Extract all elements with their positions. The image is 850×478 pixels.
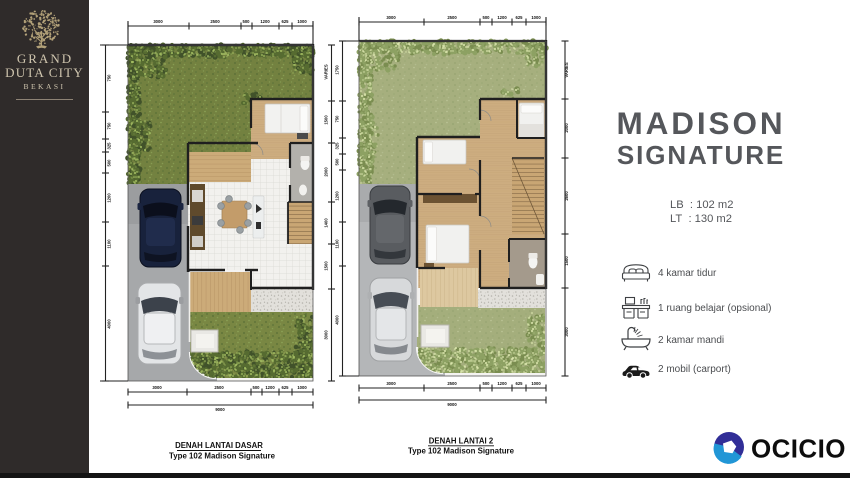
svg-text:3000: 3000 xyxy=(386,15,396,20)
svg-text:1500: 1500 xyxy=(324,261,329,271)
svg-text:9000: 9000 xyxy=(447,402,457,407)
svg-text:4000: 4000 xyxy=(335,315,340,325)
svg-text:2000: 2000 xyxy=(564,123,569,133)
svg-text:3000: 3000 xyxy=(152,385,162,390)
svg-text:9000: 9000 xyxy=(215,407,225,412)
svg-text:500: 500 xyxy=(253,385,261,390)
svg-text:1100: 1100 xyxy=(107,239,112,249)
svg-text:325: 325 xyxy=(107,142,112,150)
svg-text:3000: 3000 xyxy=(564,327,569,337)
svg-text:3000: 3000 xyxy=(324,330,329,340)
svg-text:1000: 1000 xyxy=(297,19,307,24)
svg-text:1000: 1000 xyxy=(531,381,541,386)
svg-text:1100: 1100 xyxy=(335,239,340,249)
svg-text:500: 500 xyxy=(483,381,491,386)
svg-text:4000: 4000 xyxy=(107,319,112,329)
svg-text:625: 625 xyxy=(516,15,524,20)
svg-text:DENAH LANTAI DASAR: DENAH LANTAI DASAR xyxy=(175,441,263,450)
svg-text:1400: 1400 xyxy=(324,218,329,228)
svg-text:500: 500 xyxy=(107,159,112,167)
svg-text:750: 750 xyxy=(107,122,112,130)
svg-text:500: 500 xyxy=(243,19,251,24)
svg-text:1200: 1200 xyxy=(260,19,270,24)
svg-text:1500: 1500 xyxy=(564,256,569,266)
svg-text:1000: 1000 xyxy=(297,385,307,390)
svg-text:2500: 2500 xyxy=(447,381,457,386)
svg-text:VARIES: VARIES xyxy=(564,62,569,77)
svg-text:BEKASI: BEKASI xyxy=(23,82,65,91)
svg-text:1200: 1200 xyxy=(265,385,275,390)
svg-text:DUTA CITY: DUTA CITY xyxy=(5,65,84,80)
svg-text:1200: 1200 xyxy=(107,193,112,203)
svg-text:1200: 1200 xyxy=(497,381,507,386)
svg-text:2500: 2500 xyxy=(214,385,224,390)
svg-text:625: 625 xyxy=(516,381,524,386)
svg-text:325: 325 xyxy=(335,142,340,150)
svg-text:1750: 1750 xyxy=(335,65,340,75)
svg-text:DENAH LANTAI 2: DENAH LANTAI 2 xyxy=(429,437,494,446)
svg-text:2600: 2600 xyxy=(564,191,569,201)
svg-text:2000: 2000 xyxy=(324,167,329,177)
svg-text:500: 500 xyxy=(483,15,491,20)
svg-text:750: 750 xyxy=(107,74,112,82)
svg-text:625: 625 xyxy=(282,19,290,24)
svg-text:1000: 1000 xyxy=(531,15,541,20)
svg-text:VARIES: VARIES xyxy=(324,64,329,79)
svg-text:2500: 2500 xyxy=(447,15,457,20)
svg-text:OCICIO: OCICIO xyxy=(751,434,846,464)
svg-text:1200: 1200 xyxy=(335,191,340,201)
svg-text:750: 750 xyxy=(335,115,340,123)
svg-text:625: 625 xyxy=(282,385,290,390)
svg-text:Type 102 Madison Signature: Type 102 Madison Signature xyxy=(169,452,276,461)
svg-text:3000: 3000 xyxy=(386,381,396,386)
svg-text:2500: 2500 xyxy=(210,19,220,24)
svg-text:1200: 1200 xyxy=(497,15,507,20)
svg-text:Type 102 Madison Signature: Type 102 Madison Signature xyxy=(408,447,515,456)
svg-text:1500: 1500 xyxy=(324,115,329,125)
svg-text:500: 500 xyxy=(335,158,340,166)
svg-text:3000: 3000 xyxy=(153,19,163,24)
svg-text:GRAND: GRAND xyxy=(17,51,73,66)
